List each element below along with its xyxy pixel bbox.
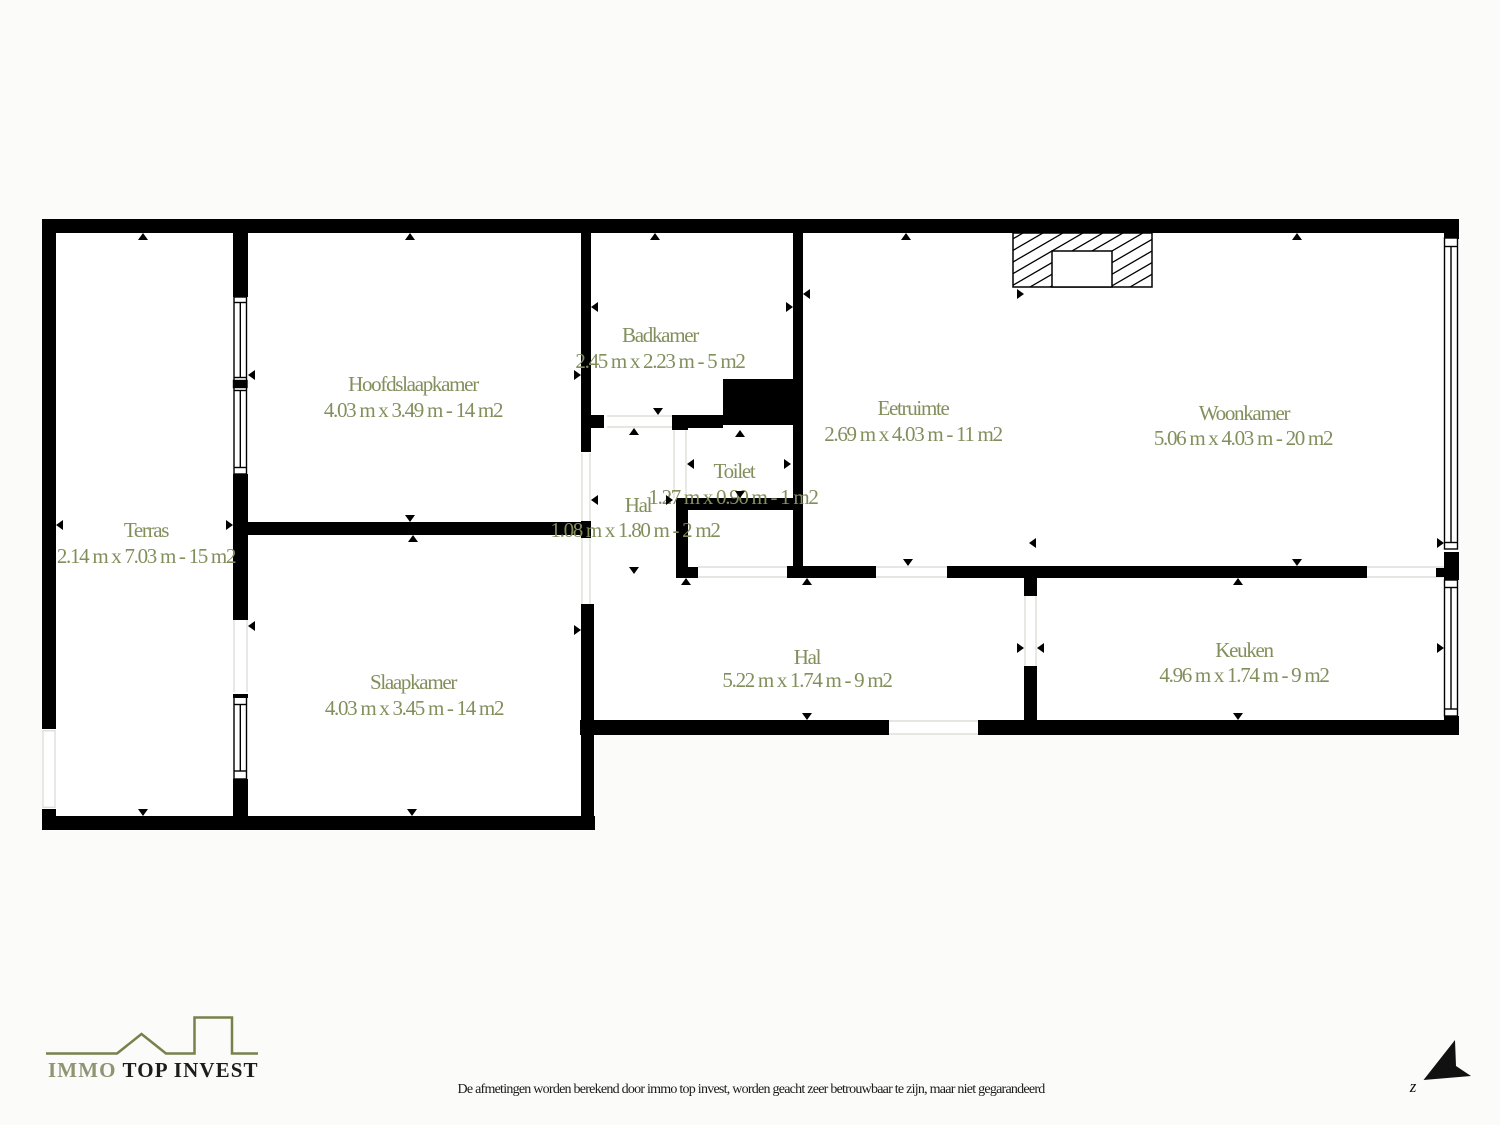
svg-text:Slaapkamer: Slaapkamer bbox=[370, 670, 457, 694]
svg-text:5.22 m x 1.74 m - 9 m2: 5.22 m x 1.74 m - 9 m2 bbox=[722, 668, 892, 692]
svg-text:Hoofdslaapkamer: Hoofdslaapkamer bbox=[348, 372, 479, 396]
svg-text:Hal: Hal bbox=[794, 645, 822, 669]
svg-text:4.96 m x 1.74 m - 9 m2: 4.96 m x 1.74 m - 9 m2 bbox=[1159, 663, 1329, 687]
svg-text:2.69 m x 4.03 m - 11 m2: 2.69 m x 4.03 m - 11 m2 bbox=[824, 422, 1002, 446]
svg-text:1.08 m x 1.80 m - 2 m2: 1.08 m x 1.80 m - 2 m2 bbox=[550, 518, 720, 542]
svg-text:4.03 m x 3.49 m - 14 m2: 4.03 m x 3.49 m - 14 m2 bbox=[324, 398, 503, 422]
svg-text:4.03 m x 3.45 m - 14 m2: 4.03 m x 3.45 m - 14 m2 bbox=[325, 696, 504, 720]
svg-text:Toilet: Toilet bbox=[714, 459, 756, 483]
svg-text:2.14 m x 7.03 m - 15 m2: 2.14 m x 7.03 m - 15 m2 bbox=[57, 544, 236, 568]
svg-text:Eetruimte: Eetruimte bbox=[877, 396, 949, 420]
svg-text:5.06 m x 4.03 m - 20 m2: 5.06 m x 4.03 m - 20 m2 bbox=[1154, 426, 1333, 450]
svg-text:Keuken: Keuken bbox=[1215, 638, 1274, 662]
svg-text:Badkamer: Badkamer bbox=[622, 323, 699, 347]
svg-text:IMMO TOP INVEST: IMMO TOP INVEST bbox=[48, 1058, 259, 1082]
svg-text:De afmetingen worden berekend: De afmetingen worden berekend door immo … bbox=[458, 1082, 1046, 1097]
svg-text:Terras: Terras bbox=[124, 518, 169, 542]
svg-text:Woonkamer: Woonkamer bbox=[1199, 401, 1291, 425]
svg-text:2.45 m x 2.23 m - 5 m2: 2.45 m x 2.23 m - 5 m2 bbox=[575, 349, 745, 373]
svg-text:z: z bbox=[1409, 1077, 1417, 1096]
svg-text:1.27 m x 0.90 m - 1 m2: 1.27 m x 0.90 m - 1 m2 bbox=[648, 485, 818, 509]
svg-text:Hal: Hal bbox=[625, 493, 653, 517]
